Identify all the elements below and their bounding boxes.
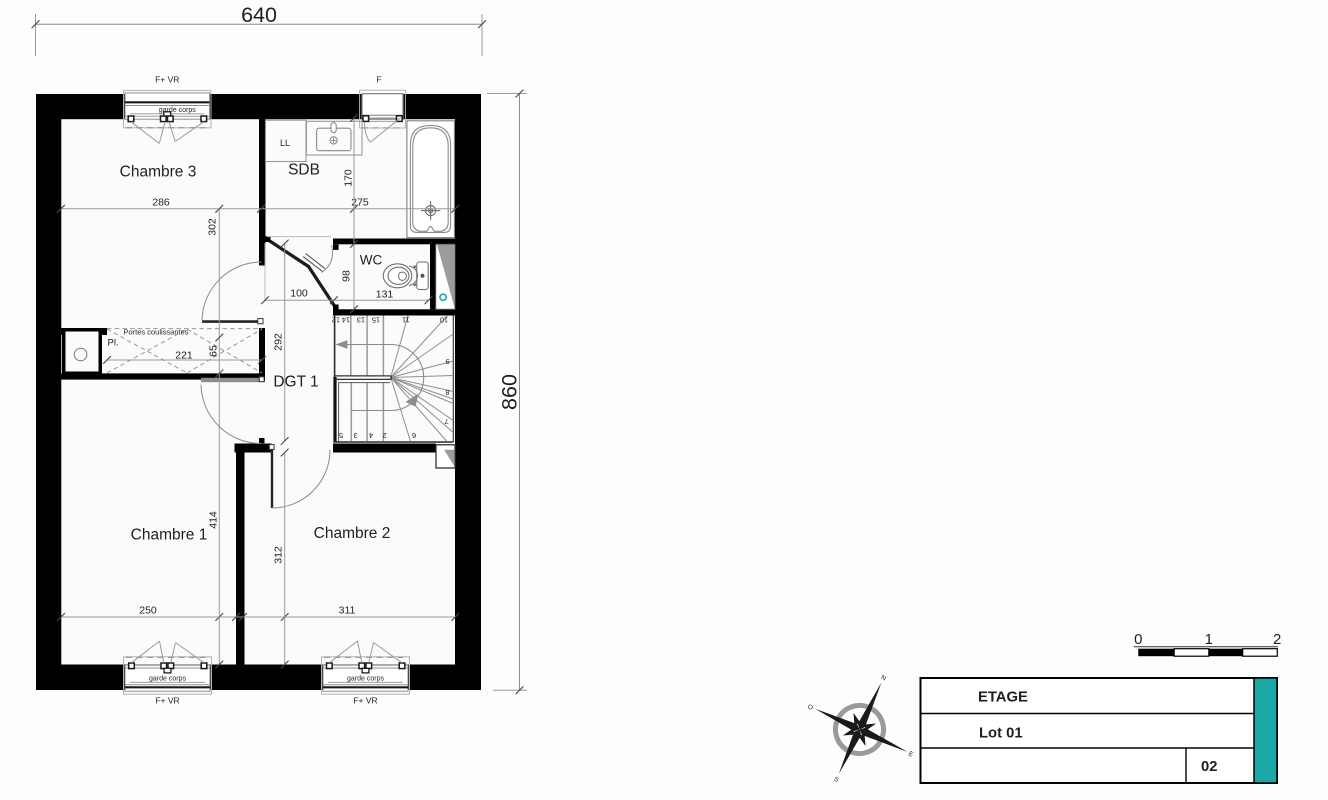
- svg-text:860: 860: [498, 374, 522, 410]
- svg-text:8: 8: [445, 388, 449, 397]
- svg-text:12: 12: [332, 316, 340, 325]
- svg-text:311: 311: [339, 605, 356, 617]
- svg-text:100: 100: [290, 288, 308, 300]
- svg-text:302: 302: [207, 218, 219, 236]
- svg-text:2: 2: [1273, 631, 1281, 648]
- svg-text:02: 02: [1201, 759, 1217, 775]
- svg-text:7: 7: [444, 417, 448, 426]
- svg-text:13: 13: [357, 316, 365, 325]
- svg-text:14: 14: [342, 316, 350, 325]
- svg-text:F: F: [376, 75, 381, 85]
- svg-text:292: 292: [272, 333, 284, 351]
- svg-text:250: 250: [139, 605, 157, 617]
- svg-text:1: 1: [1205, 631, 1213, 648]
- svg-text:98: 98: [341, 270, 353, 282]
- svg-text:15: 15: [372, 316, 380, 325]
- svg-text:640: 640: [241, 3, 277, 27]
- svg-text:F+ VR: F+ VR: [155, 75, 179, 85]
- svg-text:414: 414: [208, 511, 220, 529]
- svg-text:DGT 1: DGT 1: [273, 374, 318, 391]
- svg-text:9: 9: [445, 357, 449, 366]
- svg-text:F+ VR: F+ VR: [155, 696, 179, 706]
- svg-text:2: 2: [382, 431, 386, 440]
- svg-text:221: 221: [175, 350, 193, 362]
- svg-text:10: 10: [440, 316, 448, 325]
- svg-text:Portes coulissantes: Portes coulissantes: [123, 328, 188, 337]
- svg-text:SDB: SDB: [288, 162, 320, 179]
- svg-text:WC: WC: [360, 253, 383, 268]
- svg-text:garde corps: garde corps: [149, 676, 186, 683]
- svg-text:6: 6: [412, 431, 416, 440]
- svg-text:Chambre 2: Chambre 2: [314, 525, 391, 542]
- svg-text:Chambre 1: Chambre 1: [131, 527, 208, 544]
- svg-text:4: 4: [369, 431, 373, 440]
- svg-text:286: 286: [152, 197, 170, 209]
- svg-text:F+ VR: F+ VR: [353, 696, 377, 706]
- svg-text:65: 65: [208, 345, 220, 357]
- svg-text:312: 312: [272, 546, 284, 564]
- svg-text:garde corps: garde corps: [347, 676, 384, 683]
- svg-text:LL: LL: [280, 138, 290, 148]
- svg-text:0: 0: [1134, 631, 1142, 648]
- svg-text:3: 3: [353, 431, 357, 440]
- svg-text:11: 11: [402, 316, 410, 325]
- svg-text:131: 131: [376, 289, 394, 301]
- svg-text:5: 5: [339, 431, 343, 440]
- svg-text:Chambre 3: Chambre 3: [120, 164, 197, 181]
- svg-text:170: 170: [343, 169, 355, 187]
- svg-text:Lot 01: Lot 01: [979, 726, 1023, 742]
- svg-text:ETAGE: ETAGE: [978, 690, 1028, 706]
- svg-text:Pl.: Pl.: [108, 338, 119, 349]
